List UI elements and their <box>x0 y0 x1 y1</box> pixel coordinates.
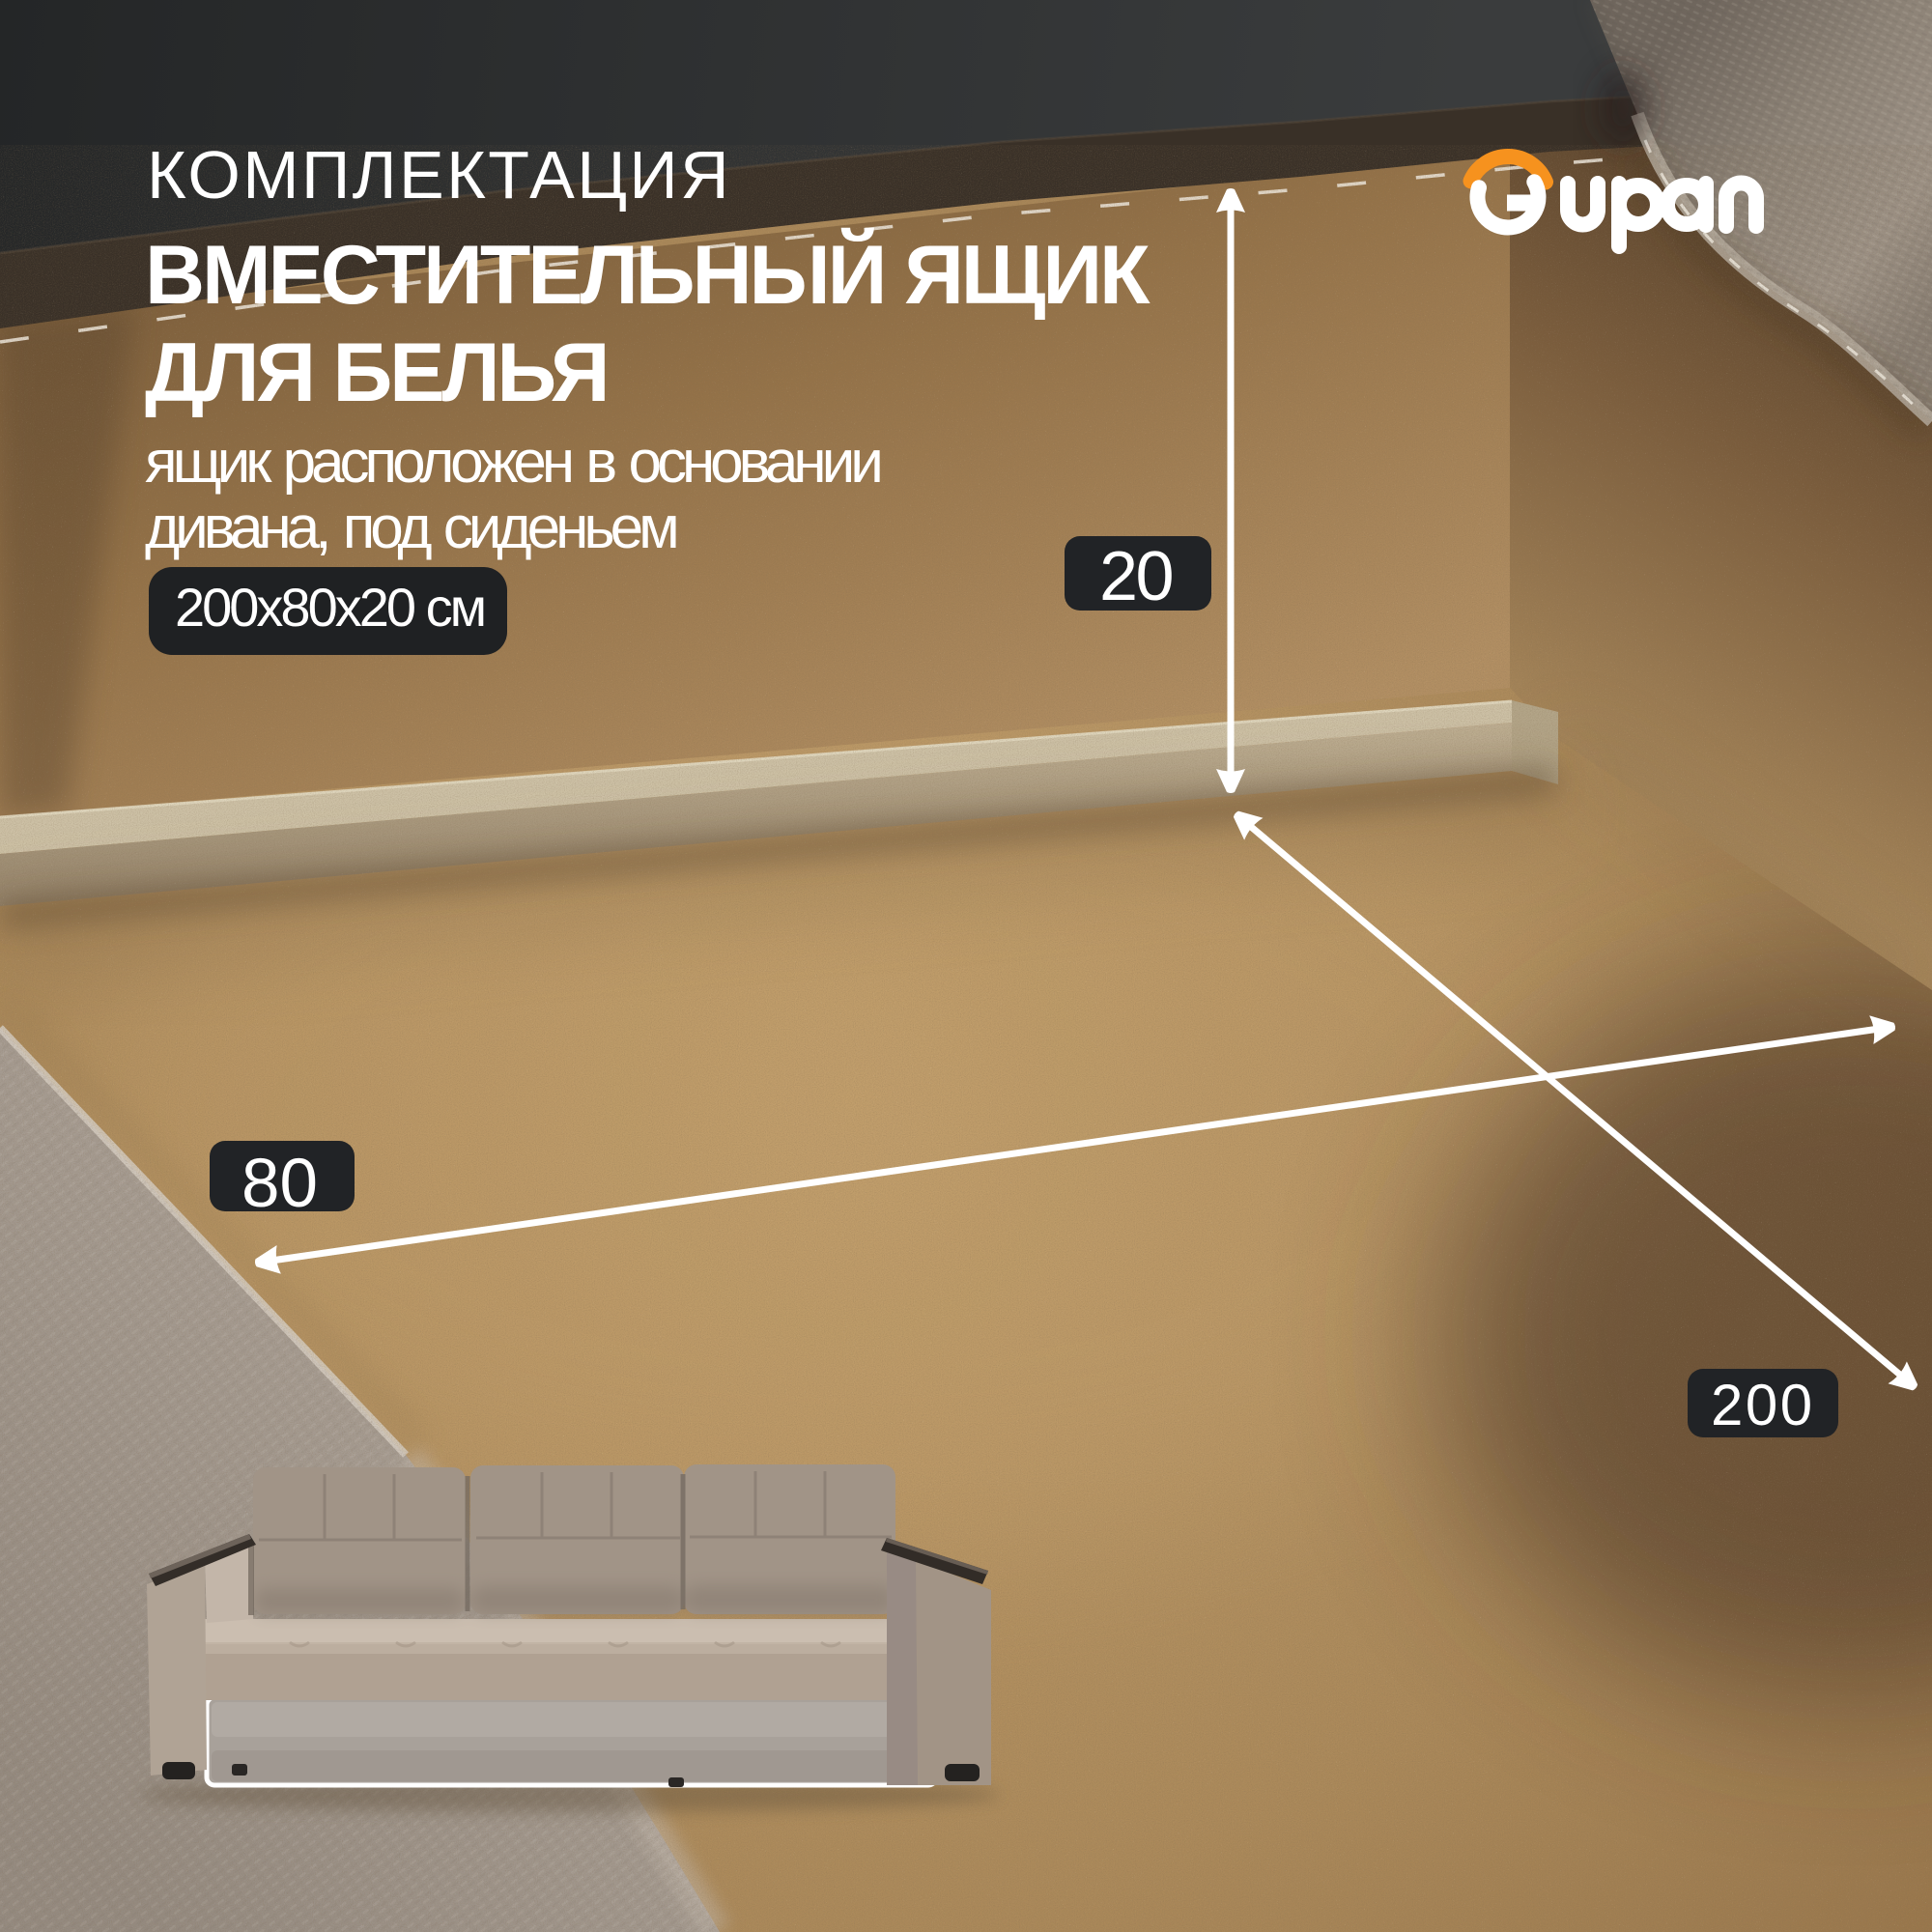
svg-text:ВМЕСТИТЕЛЬНЫЙ ЯЩИК: ВМЕСТИТЕЛЬНЫЙ ЯЩИК <box>145 228 1151 322</box>
svg-text:КОМПЛЕКТАЦИЯ: КОМПЛЕКТАЦИЯ <box>147 137 731 213</box>
svg-text:дивана, под сиденьем: дивана, под сиденьем <box>145 495 676 561</box>
svg-text:200х80х20 см: 200х80х20 см <box>175 577 484 638</box>
svg-text:200: 200 <box>1711 1373 1815 1437</box>
svg-text:ящик расположен в основании: ящик расположен в основании <box>145 429 880 496</box>
svg-text:ДЛЯ БЕЛЬЯ: ДЛЯ БЕЛЬЯ <box>145 327 607 419</box>
svg-text:20: 20 <box>1099 538 1173 615</box>
svg-text:80: 80 <box>241 1146 318 1222</box>
